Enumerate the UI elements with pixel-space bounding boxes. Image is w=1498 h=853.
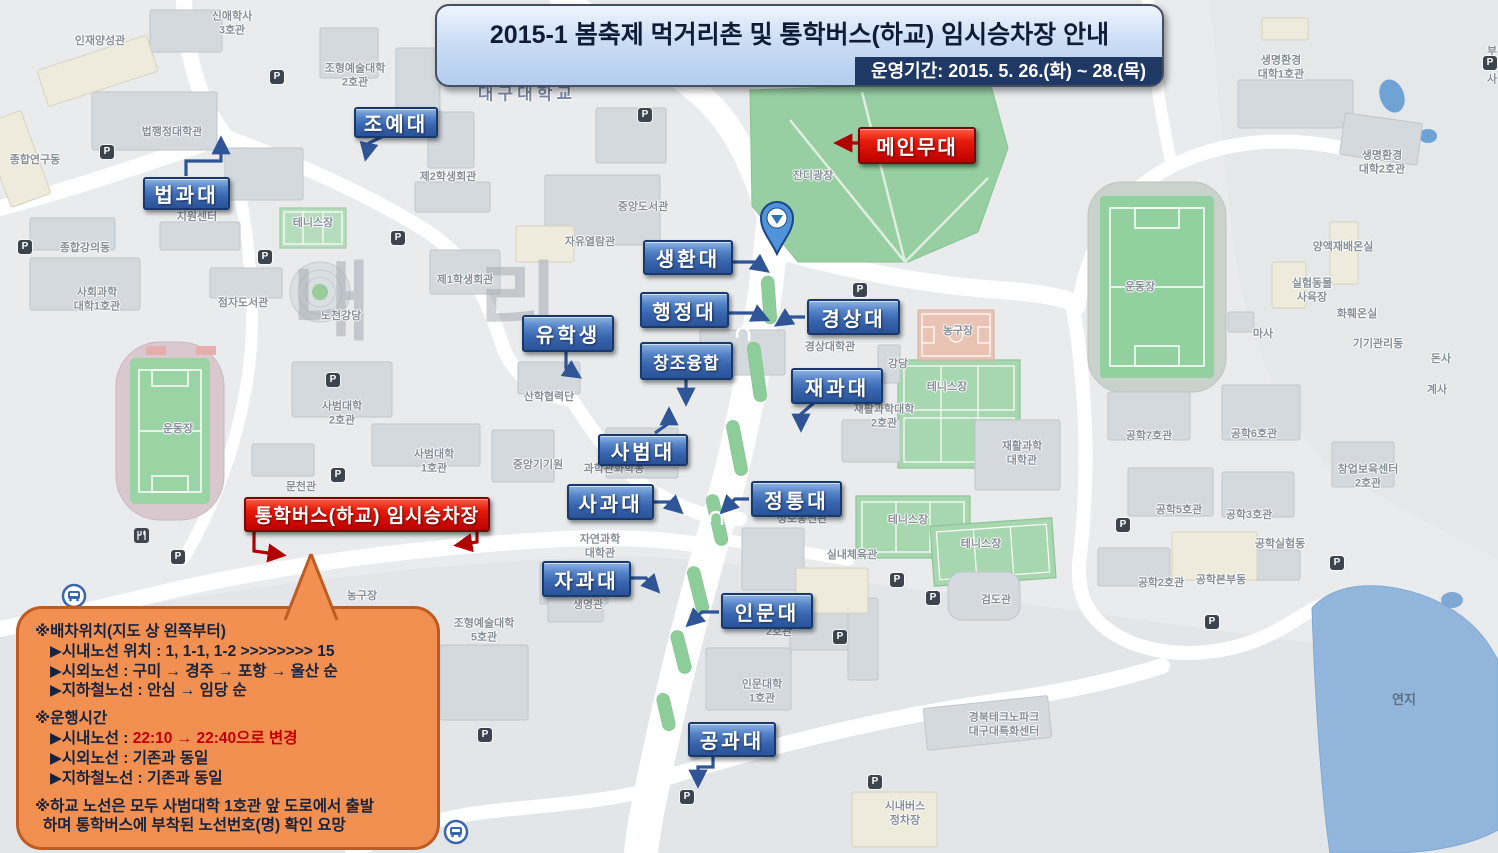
college-label-haengjeong-dae: 행정대 [640,292,729,328]
notice-schedule-title: ※운행시간 [35,709,423,729]
main-stage-label: 메인무대 [858,127,976,164]
map-label: 실험동물 사육장 [1292,277,1332,305]
map-label: 공학실험동 [1255,538,1306,552]
college-label-saenghwan-dae: 생환대 [643,240,733,275]
college-label-changjo-yunghap: 창조융합 [640,342,733,380]
map-label: 농구장 [943,325,973,339]
map-label: 산학협력단 [524,391,575,405]
map-label: 생명환경 대학2호관 [1359,149,1406,177]
parking-icon: P [478,728,492,742]
map-label: 종합연구동 [10,154,61,168]
map-label: 노천강당 [321,310,361,324]
map-label: 지원센터 [177,211,217,225]
college-label-sagwa-dae: 사과대 [567,484,654,520]
parking-icon: P [100,145,114,159]
map-label: 종합강의동 [60,242,111,256]
map-label: 공학6호관 [1231,428,1278,442]
map-label: 재활과학 대학관 [1002,440,1042,468]
college-label-inmun-dae: 인문대 [721,593,813,629]
parking-icon: P [258,250,272,264]
map-label: 공학본부동 [1196,574,1247,588]
map-label: 창업보육센터 2호관 [1338,463,1399,491]
parking-icon: P [1483,56,1497,70]
campus-map-page: { "banner": { "title": "2015-1 봄축제 먹거리촌 … [0,0,1498,853]
notice-departure-line2: 하며 통학버스에 부착된 노선번호(명) 확인 요망 [35,816,423,836]
parking-icon: P [833,630,847,644]
college-label-joye-dae: 조예대 [354,107,438,138]
map-label: 사범대학 1호관 [414,448,454,476]
notice-item: ▶지하철노선 : 기존과 동일 [35,769,423,789]
map-label: 공학7호관 [1126,430,1173,444]
map-label: 공학2호관 [1138,577,1185,591]
pond-label: 연지 [1392,692,1416,708]
college-label-yuhaksaeng: 유학생 [522,315,614,352]
notice-item: ▶시내노선 위치 : 1, 1-1, 1-2 >>>>>>>> 15 [35,642,423,662]
map-label: 자연과학 대학관 [580,533,620,561]
parking-icon: P [638,108,652,122]
map-label: 잔디광장 [793,170,833,184]
map-label: 테니스장 [961,538,1001,552]
map-label: 계사 [1427,384,1447,398]
map-label: 재활과학대학 2호관 [854,403,915,431]
map-label: 농구장 [347,590,377,604]
map-label: 운동장 [1125,281,1155,295]
map-label: 법행정대학관 [142,126,203,140]
map-label: 조형예술대학 5호관 [454,617,515,645]
parking-icon: P [868,775,882,789]
map-label: 제2학생회관 [420,171,477,185]
map-label: 생명환경 대학1호관 [1258,54,1305,82]
parking-icon: P [171,550,185,564]
notice-item: ▶시외노선 : 구미 → 경주 → 포항 → 울산 순 [35,662,423,682]
college-label-beopgwa-dae: 법과대 [143,177,230,210]
shuttle-bus-stop-label: 통학버스(하교) 임시승차장 [244,497,490,532]
parking-icon: P [680,790,694,804]
map-label: 테니스장 [888,514,928,528]
map-label: 양액재배온실 [1313,241,1374,255]
map-label: 문천관 [286,481,316,495]
college-label-sabeom-dae: 사범대 [598,434,688,466]
college-label-gonggwa-dae: 공과대 [688,722,776,757]
parking-icon: P [1116,518,1130,532]
map-label: 테니스장 [927,381,967,395]
map-label: 중앙기기원 [513,459,564,473]
map-label: 화훼온실 [1337,308,1377,322]
map-label: 공학3호관 [1226,509,1273,523]
page-title: 2015-1 봄축제 먹거리촌 및 통학버스(하교) 임시승차장 안내 [437,15,1162,51]
parking-icon: P [331,468,345,482]
parking-icon: P [326,373,340,387]
parking-icon: P [18,240,32,254]
map-label: 신애학사 3호관 [212,10,252,38]
map-label: 마사 [1253,328,1273,342]
bus-stop-icon-west [63,585,85,607]
parking-icon: P [853,283,867,297]
map-label: 돈사 [1431,353,1451,367]
operation-period: 운영기간: 2015. 5. 26.(화) ~ 28.(목) [855,57,1162,85]
notice-bubble: ※배차위치(지도 상 왼쪽부터) ▶시내노선 위치 : 1, 1-1, 1-2 … [16,606,440,850]
map-label: 제1학생회관 [437,274,494,288]
map-label: 점자도서관 [218,297,269,311]
map-label: 검도관 [981,594,1011,608]
parking-icon: P [1330,556,1344,570]
map-label: 기기관리동 [1353,338,1404,352]
pond-small-3 [1441,592,1463,608]
map-label: 자유열람관 [565,236,616,250]
map-label: 인문대학 1호관 [742,678,782,706]
college-label-jagwa-dae: 자과대 [542,561,631,597]
notice-item: ▶지하철노선 : 안심 → 임당 순 [35,681,423,701]
bus-stop-icon-south [445,821,467,843]
map-label: 사범대학 2호관 [322,400,362,428]
map-label: 시내버스 정차장 [885,800,925,828]
notice-item-time-change: ▶시내노선 : 22:10 → 22:40으로 변경 [35,729,423,749]
map-label: 테니스장 [293,217,333,231]
map-label: 경북테크노파크 대구대특화센터 [969,711,1040,739]
map-label: 조형예술대학 2호관 [325,62,386,90]
parking-icon: P [270,70,284,84]
map-label: 운동장 [163,423,193,437]
notice-dispatch-title: ※배차위치(지도 상 왼쪽부터) [35,622,423,642]
stadium-east [1088,182,1226,392]
map-label: 공학5호관 [1156,504,1203,518]
college-label-jaegwa-dae: 재과대 [791,368,883,404]
restaurant-icon [134,528,149,543]
map-label: 경상대학관 [805,341,856,355]
time-change-highlight: 22:10 → 22:40으로 변경 [133,730,298,747]
map-label: 사회과학 대학1호관 [74,286,121,314]
map-label: 중앙도서관 [618,201,669,215]
notice-departure-line1: ※하교 노선은 모두 사범대학 1호관 앞 도로에서 출발 [35,797,423,817]
map-label: 강당 [888,358,908,372]
notice-item: ▶시외노선 : 기존과 동일 [35,749,423,769]
parking-icon: P [890,573,904,587]
map-label: 실내체육관 [827,549,878,563]
parking-icon: P [1205,615,1219,629]
college-label-jeongtong-dae: 정통대 [751,481,842,517]
college-label-gyeongsang-dae: 경상대 [807,299,900,335]
title-banner: 2015-1 봄축제 먹거리촌 및 통학버스(하교) 임시승차장 안내 운영기간… [435,4,1164,87]
parking-icon: P [926,591,940,605]
map-label: 생명관 [573,599,603,613]
parking-icon: P [391,231,405,245]
map-label: 인재양성관 [75,35,126,49]
